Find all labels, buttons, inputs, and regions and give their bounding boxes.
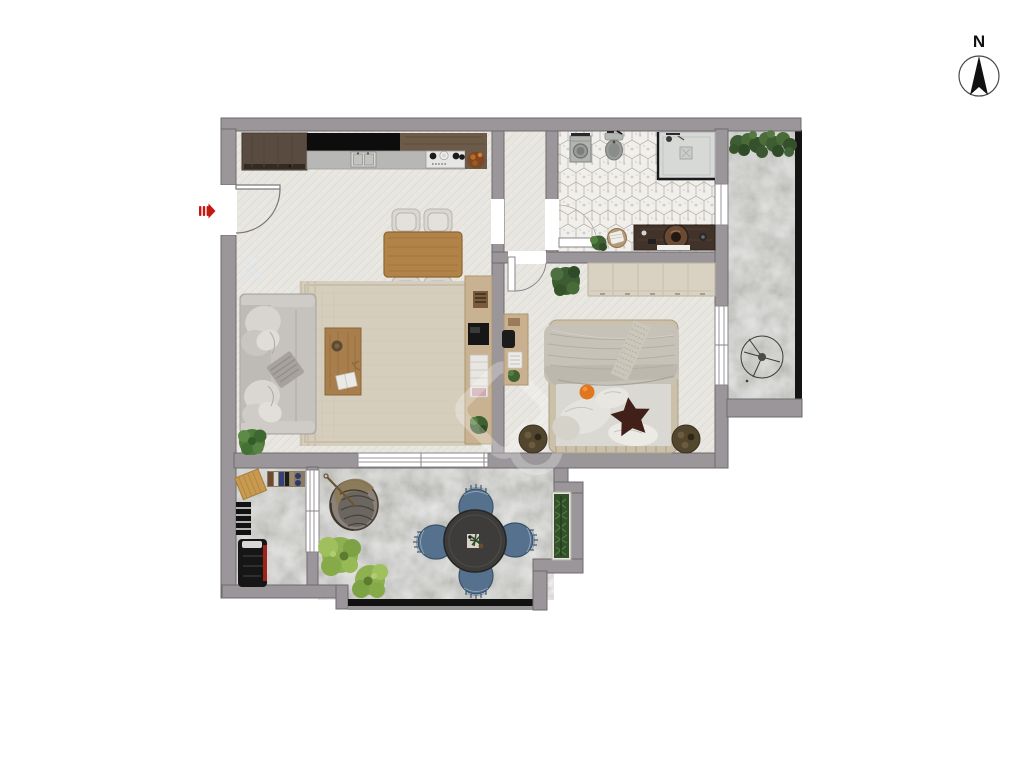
svg-text:N: N bbox=[973, 32, 985, 51]
